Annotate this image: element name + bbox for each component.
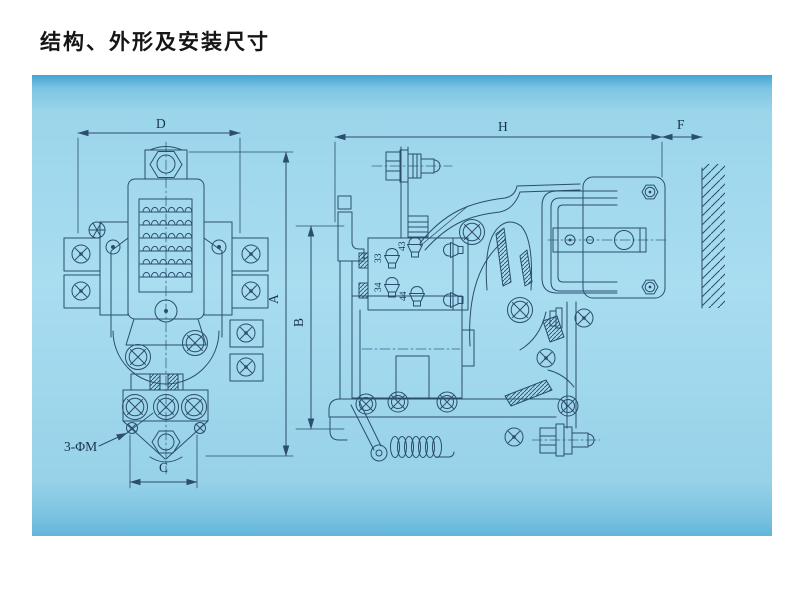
mounting-wall — [702, 164, 725, 308]
dim-label-A: A — [266, 294, 281, 304]
diagram-canvas: D A C 3-ΦM — [0, 0, 800, 600]
terminal-label-34: 34 — [374, 282, 384, 292]
slide-page: 结构、外形及安装尺寸 — [0, 0, 800, 600]
drawing-panel — [32, 75, 772, 536]
mounting-holes-label: 3-ΦM — [64, 439, 97, 454]
dim-label-F: F — [677, 117, 685, 132]
terminal-label-33: 33 — [374, 253, 384, 263]
dim-label-B: B — [291, 318, 306, 327]
dim-label-C: C — [159, 460, 168, 475]
dim-label-H: H — [498, 119, 508, 134]
terminal-label-43: 43 — [398, 241, 408, 251]
dim-label-D: D — [156, 116, 166, 131]
